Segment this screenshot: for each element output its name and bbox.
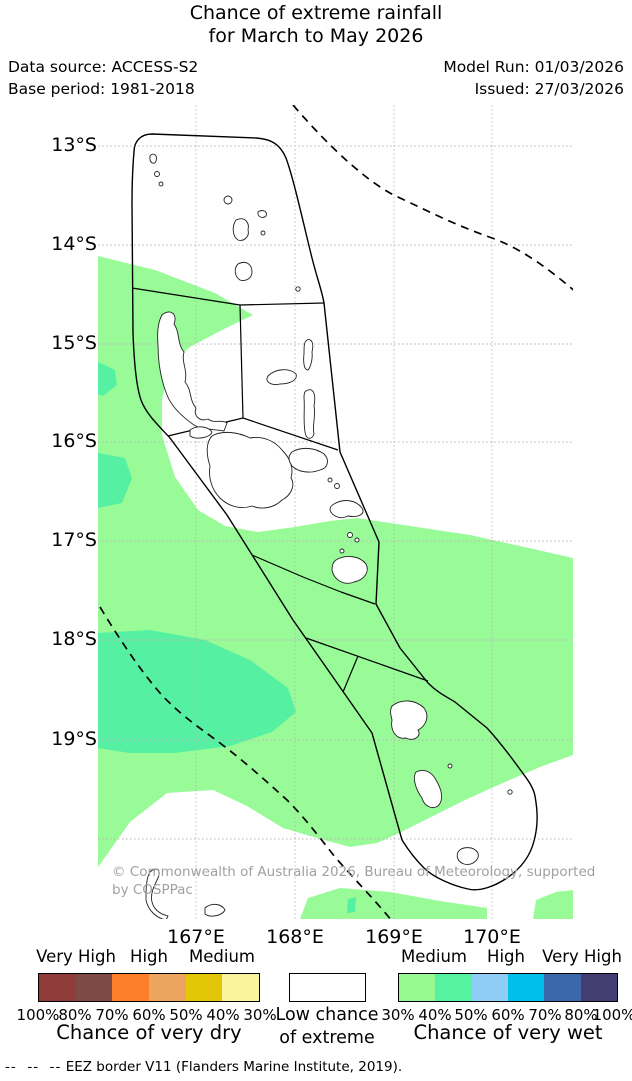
island-epi [330, 501, 363, 518]
lat-label-17s: 17°S [35, 529, 97, 551]
island-tongoa [348, 533, 353, 538]
province-borders [132, 288, 428, 692]
copyright-line-2: by COSPPac [112, 881, 193, 899]
island-torres-2 [155, 172, 160, 177]
lat-label-19s: 19°S [35, 728, 97, 750]
title-line-1: Chance of extreme rainfall [0, 2, 632, 25]
wet-50-shading [98, 362, 356, 913]
model-run-label: Model Run: 01/03/2026 [443, 56, 624, 78]
lat-label-14s: 14°S [35, 233, 97, 255]
dry-swatch-60 [149, 974, 186, 1001]
lat-label-16s: 16°S [35, 430, 97, 452]
lat-label-18s: 18°S [35, 628, 97, 650]
lon-label-170e: 170°E [450, 926, 534, 948]
dry-swatch-80 [76, 974, 113, 1001]
island-lopevi [335, 484, 340, 489]
wet-level-very-high: Very High [536, 947, 628, 966]
wet-swatch-70 [544, 974, 580, 1001]
island-aneityum [457, 848, 478, 865]
island-ambrym [289, 448, 327, 472]
island-tanna [414, 770, 441, 807]
wet-swatch-40 [435, 974, 471, 1001]
island-shepherd [355, 538, 359, 542]
islands [146, 154, 512, 920]
island-aniwa [448, 764, 452, 768]
wet-colorbar [398, 973, 618, 1002]
island-torres-3 [159, 182, 163, 186]
neighbor-eez-dashed-border [100, 105, 577, 921]
dry-swatch-50 [186, 974, 223, 1001]
island-mere-lava [296, 287, 300, 291]
island-paama [328, 478, 332, 482]
island-small-southwest [205, 904, 225, 916]
island-mota-lava [258, 211, 267, 218]
low-chance-label-1: Low chance [266, 1004, 388, 1027]
low-chance-label-2: of extreme [266, 1027, 388, 1050]
page-title: Chance of extreme rainfall for March to … [0, 2, 632, 48]
data-source-label: Data source: ACCESS-S2 [8, 56, 198, 78]
issued-label: Issued: 27/03/2026 [475, 78, 624, 100]
dry-swatch-70 [112, 974, 149, 1001]
wet-swatch-80 [581, 974, 617, 1001]
island-efate [332, 557, 367, 584]
vanuatu-eez-boundary [132, 134, 537, 890]
island-ureparapara [224, 196, 232, 204]
island-gaua [235, 262, 252, 280]
wet-swatch-50 [472, 974, 508, 1001]
base-period-label: Base period: 1981-2018 [8, 78, 195, 100]
wet-swatch-30 [399, 974, 435, 1001]
island-erromango [391, 701, 427, 739]
lon-label-169e: 169°E [352, 926, 436, 948]
wet-legend-title: Chance of very wet [388, 1021, 628, 1044]
eez-note-text: EEZ border V11 (Flanders Marine Institut… [61, 1059, 402, 1075]
rainfall-outlook-page: Chance of extreme rainfall for March to … [0, 0, 632, 1081]
graticule [98, 105, 573, 919]
dry-colorbar [38, 973, 260, 1002]
island-vanua-lava [233, 219, 248, 241]
wet-40-shading [98, 256, 573, 919]
island-futuna [508, 790, 512, 794]
lat-label-13s: 13°S [35, 134, 97, 156]
island-pentecost [304, 390, 315, 439]
eez-dash-sample: -- -- -- [5, 1059, 61, 1075]
island-santo [158, 312, 227, 431]
lon-label-167e: 167°E [154, 926, 238, 948]
copyright-line-1: © Commonwealth of Australia 2026, Bureau… [112, 863, 595, 881]
island-nguna [340, 549, 344, 553]
island-maewo [304, 340, 313, 370]
eez-border-note: -- -- -- EEZ border V11 (Flanders Marine… [5, 1059, 402, 1075]
island-ambae [267, 370, 296, 385]
island-mota [261, 231, 265, 235]
island-malo [190, 427, 212, 438]
island-malakula [207, 432, 293, 508]
dry-legend-title: Chance of very dry [29, 1021, 269, 1044]
island-torres [150, 154, 157, 163]
dry-level-medium: Medium [176, 947, 268, 966]
low-chance-swatch [289, 973, 366, 1002]
dry-swatch-40 [222, 974, 259, 1001]
wet-swatch-60 [508, 974, 544, 1001]
title-line-2: for March to May 2026 [0, 25, 632, 48]
lat-label-15s: 15°S [35, 332, 97, 354]
dry-swatch-100 [39, 974, 76, 1001]
lon-label-168e: 168°E [253, 926, 337, 948]
